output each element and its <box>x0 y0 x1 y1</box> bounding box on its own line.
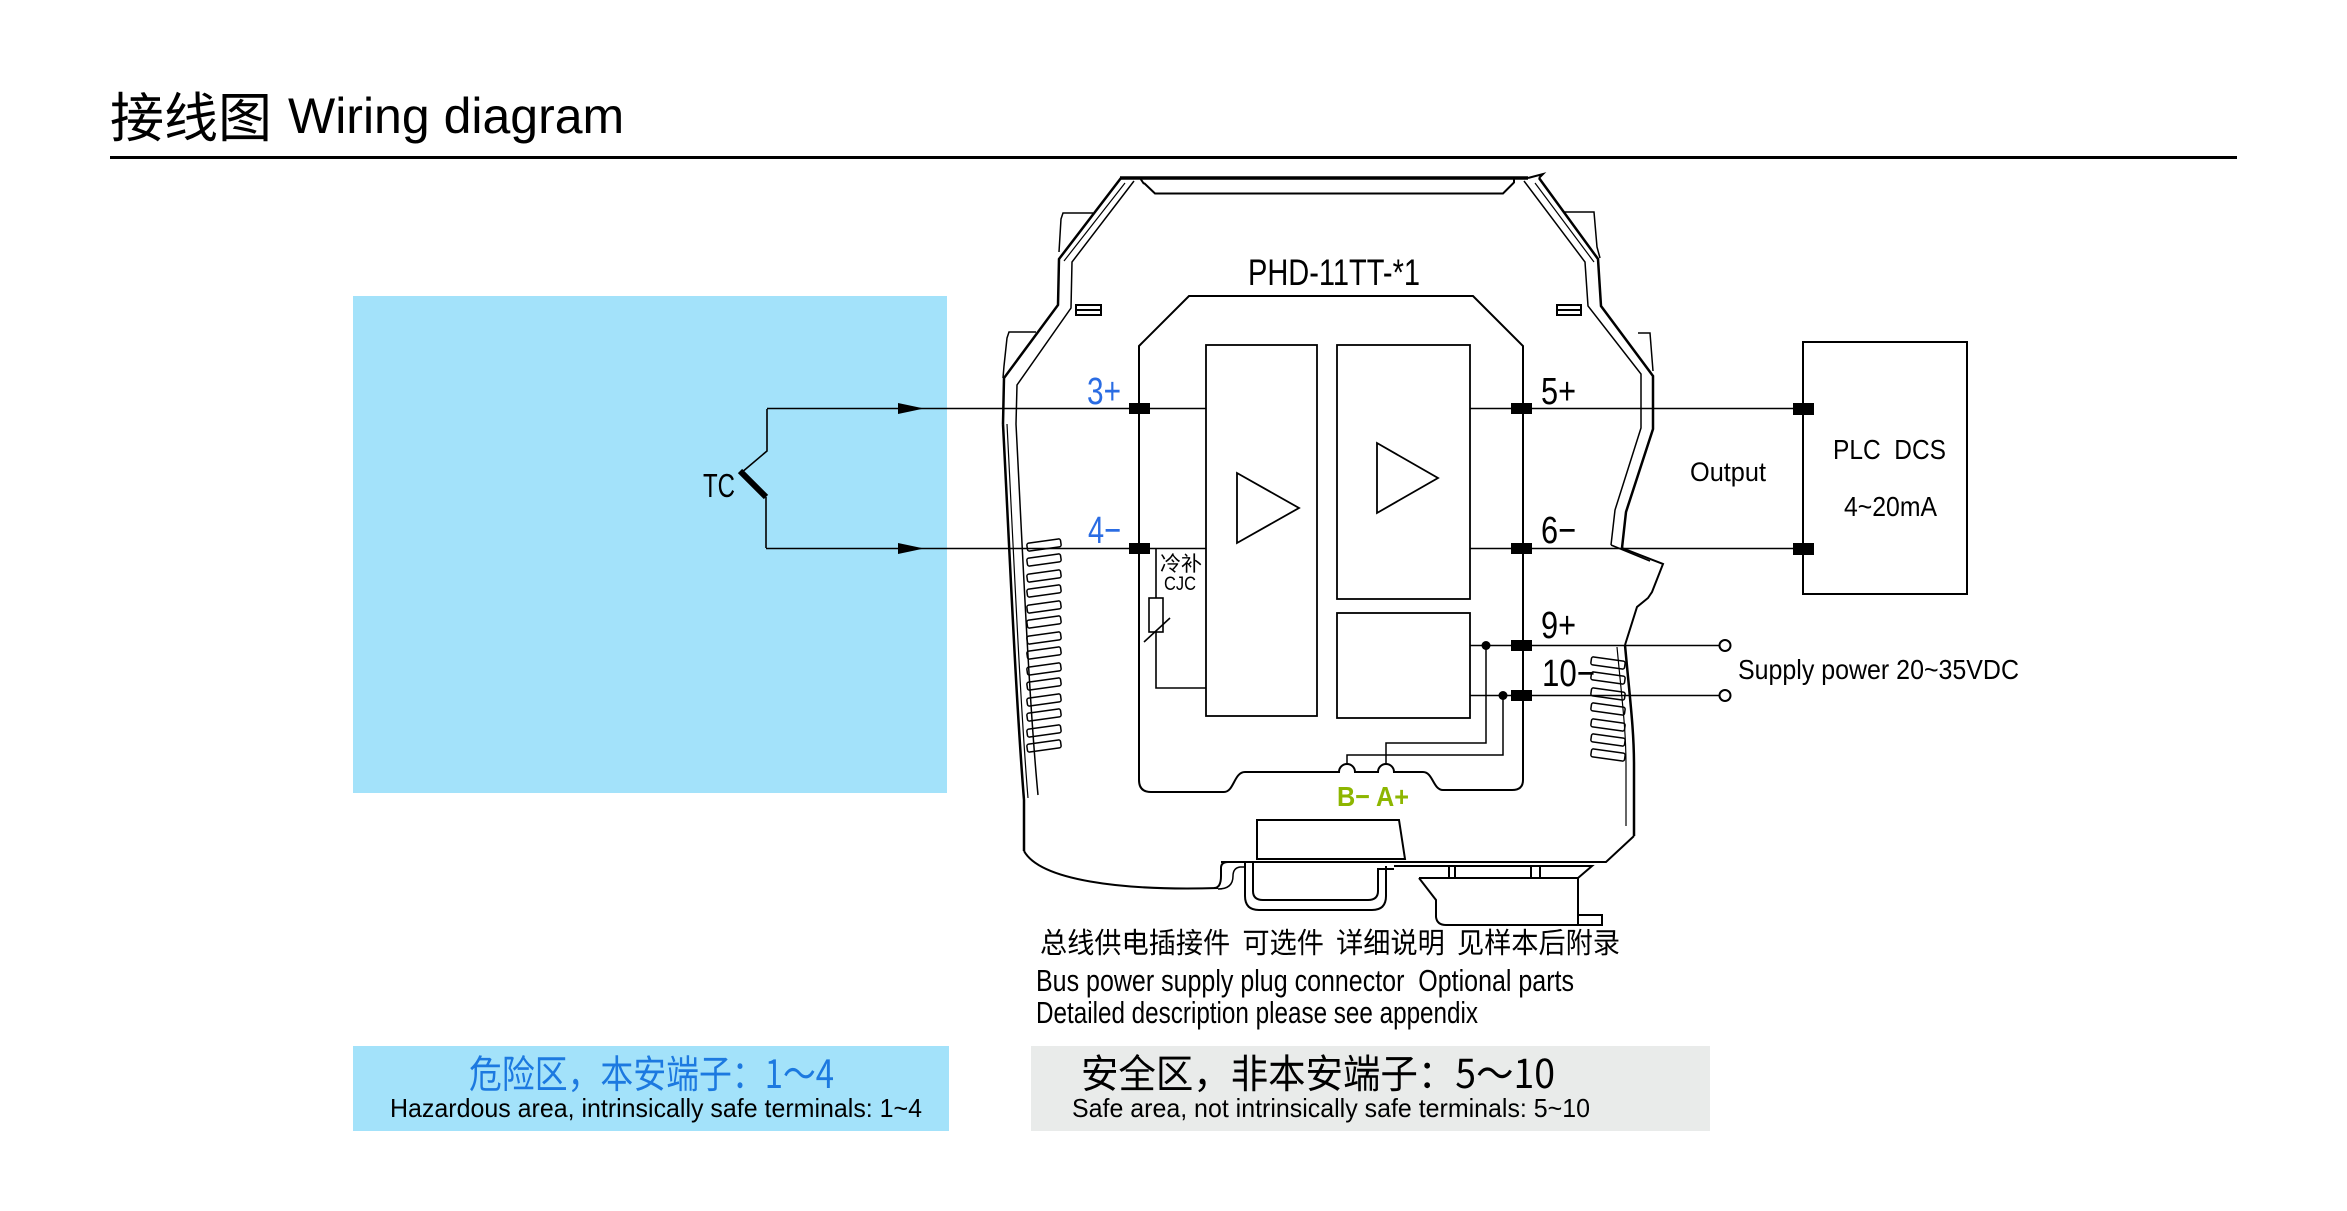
svg-text:4−: 4− <box>1088 510 1121 552</box>
svg-text:Wiring diagram: Wiring diagram <box>288 88 624 144</box>
svg-text:Detailed description please se: Detailed description please see appendix <box>1036 995 1478 1030</box>
svg-text:10−: 10− <box>1542 653 1595 695</box>
svg-text:3+: 3+ <box>1087 371 1121 413</box>
svg-text:6−: 6− <box>1541 510 1576 552</box>
svg-text:PLC DCS: PLC DCS <box>1833 434 1946 465</box>
svg-text:Hazardous area, intrinsically: Hazardous area, intrinsically safe termi… <box>390 1093 922 1123</box>
svg-text:Bus power supply plug connecto: Bus power supply plug connector Optional… <box>1036 963 1574 998</box>
svg-text:Supply power 20~35VDC: Supply power 20~35VDC <box>1738 654 2019 685</box>
svg-text:Output: Output <box>1690 457 1766 487</box>
svg-text:4~20mA: 4~20mA <box>1844 491 1937 522</box>
svg-text:Safe area, not intrinsically s: Safe area, not intrinsically safe termin… <box>1072 1093 1590 1123</box>
svg-text:9+: 9+ <box>1541 605 1576 647</box>
svg-text:TC: TC <box>703 467 735 504</box>
svg-text:CJC: CJC <box>1164 574 1196 595</box>
svg-text:5+: 5+ <box>1541 371 1576 413</box>
svg-text:B− A+: B− A+ <box>1337 781 1409 812</box>
svg-text:PHD-11TT-*1: PHD-11TT-*1 <box>1248 252 1420 293</box>
